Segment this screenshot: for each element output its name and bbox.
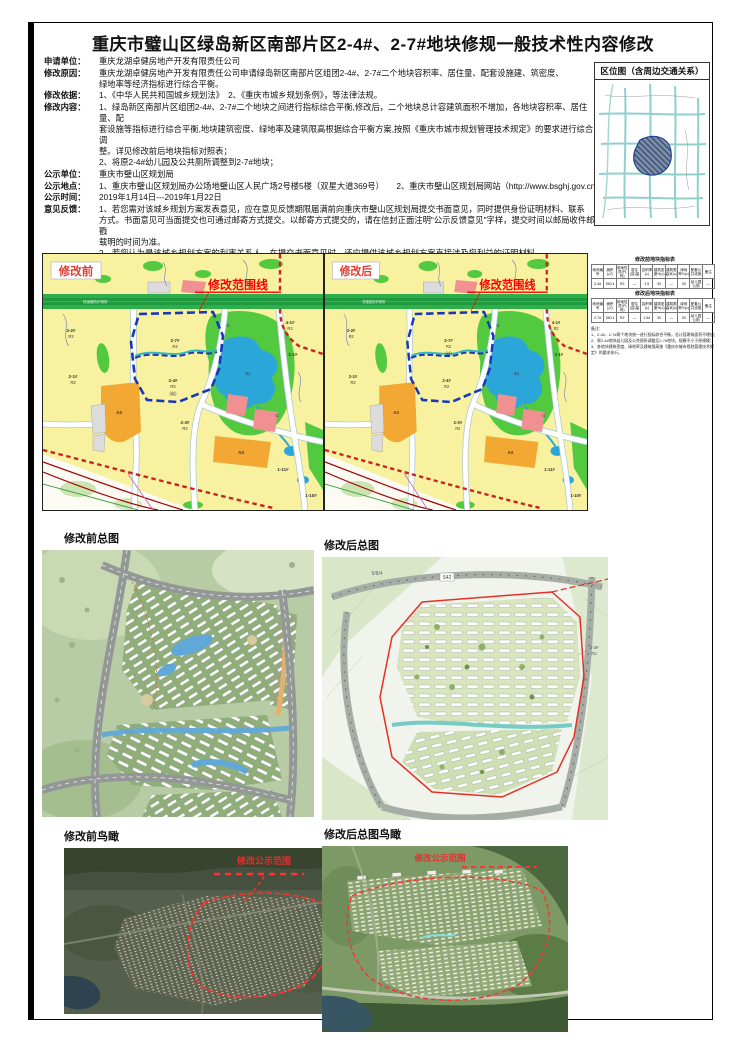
note-line: 3、各地块建筑密度、绿地率及建筑限高按《重庆市城市规划管理技术规定》的要求执行。 — [591, 344, 719, 356]
siteplan-after-label: 修改后总图 — [324, 537, 608, 553]
info-label: 修改内容： — [44, 102, 99, 169]
aerial-after-image: 修改公示范围 — [322, 846, 568, 1032]
table-notes: 备注： 1、2-4#、2-7#两个地块统一进行指标综合平衡，总计容建筑面积不增加… — [591, 326, 719, 355]
info-label: 公示时间： — [44, 192, 99, 203]
col-header: 备注 — [702, 265, 714, 279]
table-title-before: 修改前地块指标表 — [591, 256, 719, 263]
cell: R2 — [616, 313, 628, 323]
siteplan-before-label: 修改前总图 — [64, 530, 314, 546]
note-line: 2、原2-4#地块幼儿园及公共厕所调整至2-7#地块，规模不小于原规模； — [591, 338, 719, 344]
col-header: 建筑限高米(≤) — [665, 299, 677, 313]
zoning-maps-section: (幼) 修改范围线 修改前 (幼) 修改范围线 修改后 修改前地块指标表 地块编… — [42, 253, 720, 511]
cell: 30 — [678, 313, 690, 323]
col-header: 配套公共设施 — [690, 265, 702, 279]
block-label: 5/8/4 — [371, 571, 382, 577]
aerial-scope-label: 修改公示范围 — [236, 855, 291, 866]
vicinity-map-title: 区位图（含周边交通关系） — [595, 63, 709, 80]
siteplan-before-block: 修改前总图 — [42, 530, 314, 822]
vicinity-map-box: 区位图（含周边交通关系） — [594, 62, 710, 226]
siteplan-after-block: 修改后总图 — [322, 537, 608, 825]
cell: 30 — [678, 279, 690, 289]
cell: — — [702, 279, 714, 289]
col-header: 绿地率%(≥) — [678, 299, 690, 313]
table-row: 2-4#250.4R2—1.530—30幼儿园 公厕— — [592, 279, 715, 289]
page-title: 重庆市璧山区绿岛新区南部片区2-4#、2-7#地块修规一般技术性内容修改 — [34, 30, 712, 55]
aerial-after-block: 修改后总图鸟瞰 修改公示范围 — [322, 826, 568, 1037]
cell: — — [665, 279, 677, 289]
parcel-code: R2 — [591, 651, 597, 656]
siteplan-before-image — [42, 550, 314, 817]
col-header: 居住(容)量 — [628, 265, 640, 279]
info-block: 申请单位：重庆龙湖卓健房地产开发有限责任公司 修改原因：重庆龙湖卓健房地产开发有… — [44, 56, 600, 282]
info-value: 重庆龙湖卓健房地产开发有限责任公司申请绿岛新区南部片区组团2-4#、2-7#二个… — [99, 68, 600, 90]
cell: 250.4 — [604, 279, 616, 289]
zoning-map-after: (幼) 修改范围线 修改后 — [324, 253, 588, 511]
col-header: 地块编号 — [592, 265, 604, 279]
kindergarten-marker: (幼) — [445, 350, 452, 356]
aerial-before-label: 修改前鸟瞰 — [64, 828, 338, 844]
cell: 2-7# — [592, 313, 604, 323]
col-header: 绿地率%(≥) — [678, 265, 690, 279]
col-header: 居住(容)量 — [628, 299, 640, 313]
indicator-table-after: 地块编号面积(㎡)用地性质(代码)居住(容)量容积率(≤)建筑密度%(≤)建筑限… — [591, 298, 715, 323]
info-row: 申请单位：重庆龙湖卓健房地产开发有限责任公司 — [44, 56, 600, 67]
scope-line-label: 修改范围线 — [207, 277, 268, 292]
info-label: 公示地点： — [44, 181, 99, 192]
col-header: 地块编号 — [592, 299, 604, 313]
cell: 幼儿园 公厕 — [690, 279, 702, 289]
info-row: 公示时间：2019年1月14日---2019年1月22日 — [44, 192, 600, 203]
info-value: 1、绿岛新区南部片区组团2-4#、2-7#二个地块之间进行指标综合平衡,修改后，… — [99, 102, 600, 169]
info-row: 公示地点：1、重庆市璧山区规划局办公场地璧山区人民广场2号楼5楼（双星大道369… — [44, 181, 600, 192]
aerial-after-label: 修改后总图鸟瞰 — [324, 826, 568, 842]
cell: — — [702, 313, 714, 323]
map-before-label: 修改前 — [58, 264, 94, 278]
info-value: 1、重庆市璧山区规划局办公场地璧山区人民广场2号楼5楼（双星大道369号） 2、… — [99, 181, 600, 192]
road-label: S42 — [443, 575, 452, 581]
cell: — — [628, 313, 640, 323]
parcel-label: 2-3# — [589, 645, 599, 650]
cell: 幼儿园 公厕 — [690, 313, 702, 323]
info-label: 申请单位： — [44, 56, 99, 67]
document-frame: 重庆市璧山区绿岛新区南部片区2-4#、2-7#地块修规一般技术性内容修改 申请单… — [28, 22, 713, 1020]
info-row: 修改内容：1、绿岛新区南部片区组团2-4#、2-7#二个地块之间进行指标综合平衡… — [44, 102, 600, 169]
indicator-table-before: 地块编号面积(㎡)用地性质(代码)居住(容)量容积率(≤)建筑密度%(≤)建筑限… — [591, 264, 715, 289]
col-header: 配套公共设施 — [690, 299, 702, 313]
aerial-before-block: 修改前鸟瞰 修改公示范围 — [64, 828, 338, 1019]
col-header: 建筑密度%(≤) — [653, 265, 665, 279]
col-header: 建筑密度%(≤) — [653, 299, 665, 313]
cell: — — [628, 279, 640, 289]
col-header: 用地性质(代码) — [616, 299, 628, 313]
cell: 30 — [653, 279, 665, 289]
table-title-after: 修改后地块指标表 — [591, 290, 719, 297]
zoning-map-before: (幼) 修改范围线 修改前 — [42, 253, 324, 511]
vicinity-map — [595, 80, 707, 220]
cell: R2 — [616, 279, 628, 289]
cell: — — [665, 313, 677, 323]
aerial-scope-label: 修改公示范围 — [413, 853, 465, 863]
info-label: 修改原因： — [44, 68, 99, 90]
info-value: 重庆龙湖卓健房地产开发有限责任公司 — [99, 56, 600, 67]
col-header: 备注 — [702, 299, 714, 313]
siteplan-after-image: S42 5/8/4 2-3# R2 — [322, 557, 608, 820]
cell: 2-4# — [592, 279, 604, 289]
col-header: 容积率(≤) — [641, 265, 653, 279]
scope-line-label: 修改范围线 — [478, 278, 535, 292]
kindergarten-marker: (幼) — [170, 390, 178, 397]
info-row: 公示单位：重庆市璧山区规划局 — [44, 169, 600, 180]
cell: 1.54 — [641, 313, 653, 323]
aerial-before-image: 修改公示范围 — [64, 848, 338, 1014]
map-after-label: 修改后 — [339, 264, 372, 278]
table-row: 2-7#250.4R2—1.5430—30幼儿园 公厕— — [592, 313, 715, 323]
note-line: 1、2-4#、2-7#两个地块统一进行指标综合平衡，总计容建筑面积不增加； — [591, 332, 719, 338]
info-value: 重庆市璧山区规划局 — [99, 169, 600, 180]
indicator-tables: 修改前地块指标表 地块编号面积(㎡)用地性质(代码)居住(容)量容积率(≤)建筑… — [588, 253, 720, 355]
col-header: 面积(㎡) — [604, 265, 616, 279]
site-location-marker — [634, 136, 671, 175]
cell: 250.4 — [604, 313, 616, 323]
cell: 1.5 — [641, 279, 653, 289]
info-row: 修改原因：重庆龙湖卓健房地产开发有限责任公司申请绿岛新区南部片区组团2-4#、2… — [44, 68, 600, 90]
col-header: 容积率(≤) — [641, 299, 653, 313]
info-label: 修改依据： — [44, 90, 99, 101]
info-label: 公示单位： — [44, 169, 99, 180]
cell: 30 — [653, 313, 665, 323]
info-row: 修改依据：1、《中华人民共和国城乡规划法》 2、《重庆市城乡规划条例》，等法律法… — [44, 90, 600, 101]
col-header: 建筑限高米(≤) — [665, 265, 677, 279]
col-header: 面积(㎡) — [604, 299, 616, 313]
info-value: 2019年1月14日---2019年1月22日 — [99, 192, 600, 203]
col-header: 用地性质(代码) — [616, 265, 628, 279]
info-value: 1、《中华人民共和国城乡规划法》 2、《重庆市城乡规划条例》，等法律法规。 — [99, 90, 600, 101]
